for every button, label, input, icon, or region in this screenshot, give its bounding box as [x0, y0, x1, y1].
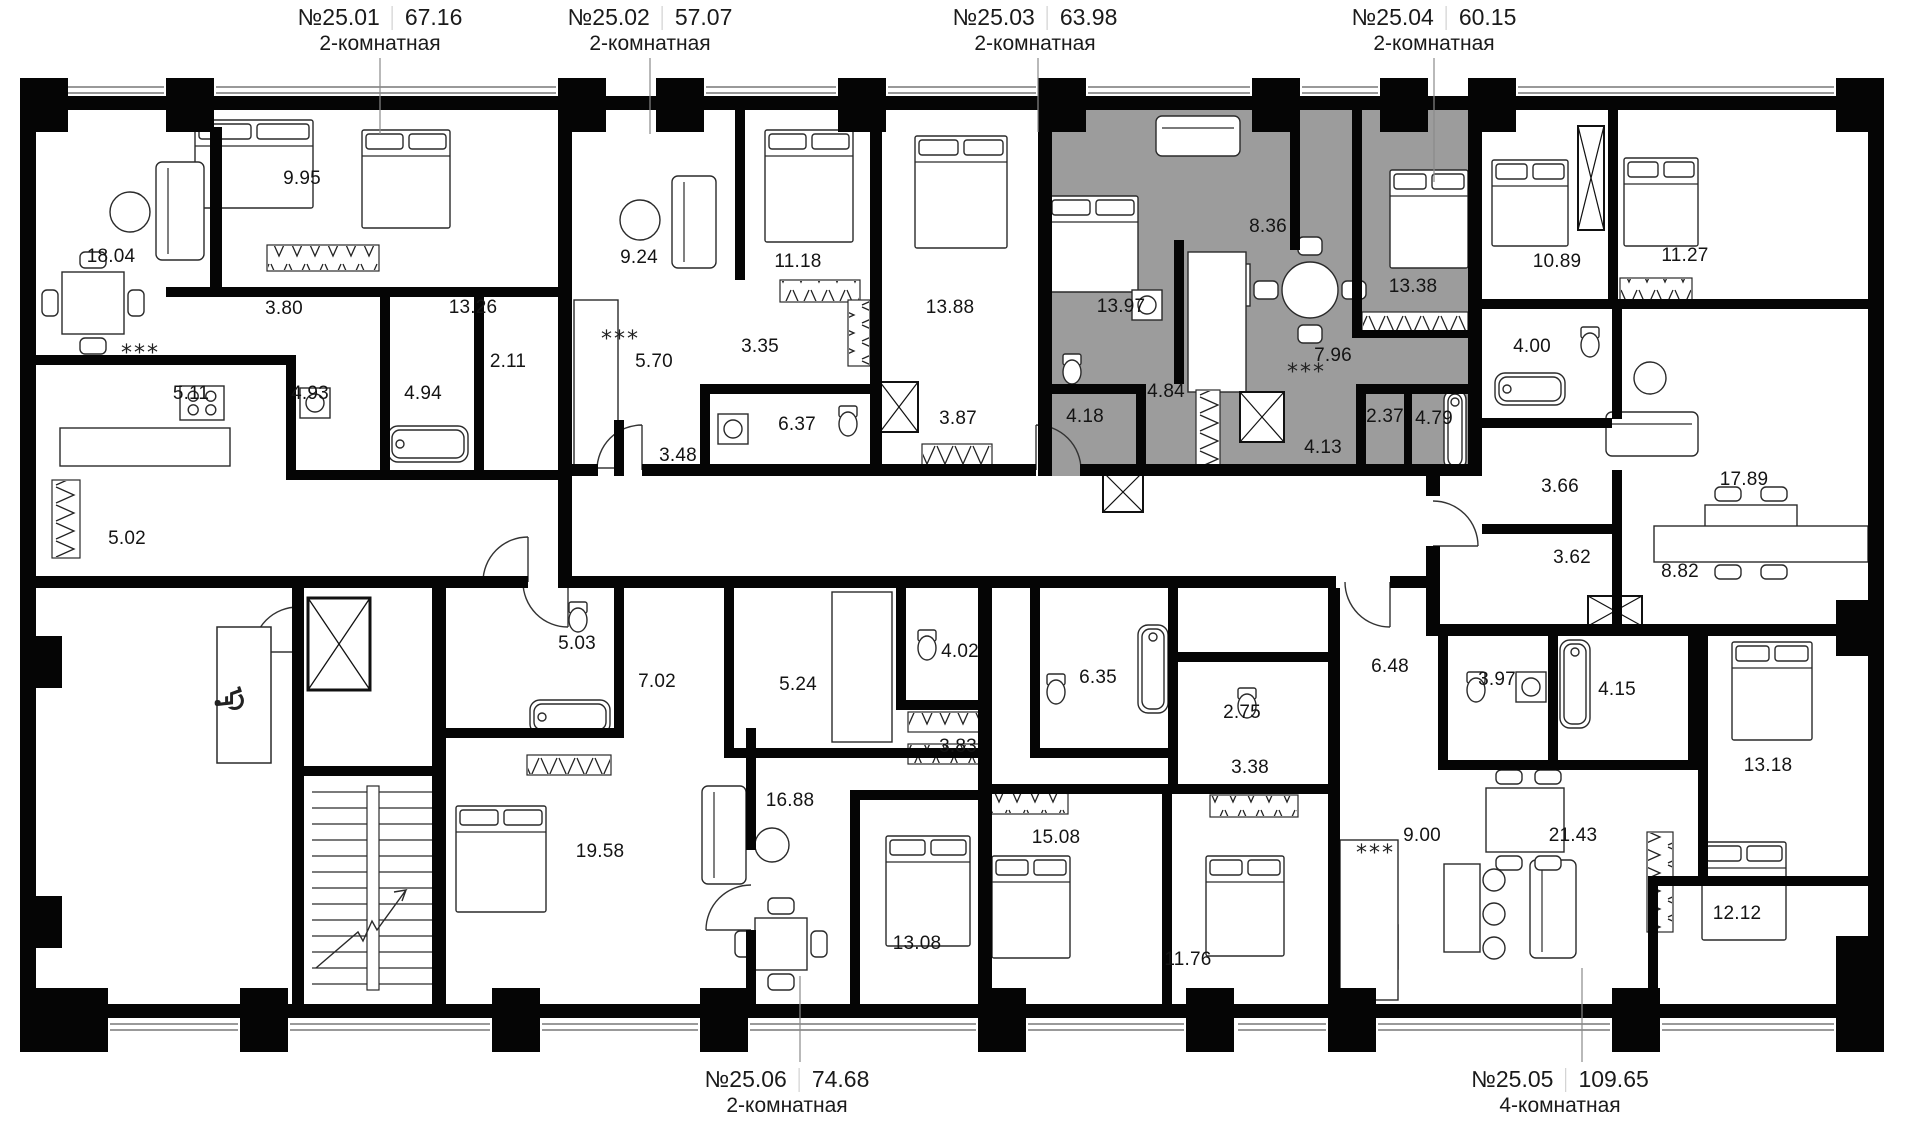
room-area-label: 7.96 — [1314, 345, 1352, 367]
apartment-type: 2-комнатная — [568, 32, 733, 56]
room-area-label: 3.62 — [1553, 547, 1591, 569]
room-area-label: 3.80 — [265, 298, 303, 320]
room-area-label: 15.08 — [1032, 827, 1081, 849]
room-area-label: 6.35 — [1079, 667, 1117, 689]
apartment-type: 2-комнатная — [1352, 32, 1517, 56]
apartment-number: №25.02 — [568, 4, 650, 31]
apartment-label-25-06[interactable]: №25.06 74.68 2-комнатная — [705, 1066, 870, 1118]
room-area-label: 13.18 — [1744, 755, 1793, 777]
room-area-label: 5.03 — [558, 633, 596, 655]
room-area-label: 3.87 — [939, 408, 977, 430]
washer-symbol: *** — [1356, 841, 1395, 866]
room-area-label: 13.88 — [926, 297, 975, 319]
room-area-label: 3.48 — [659, 445, 697, 467]
apartment-label-25-02[interactable]: №25.02 57.07 2-комнатная — [568, 4, 733, 56]
room-area-label: 9.95 — [283, 168, 321, 190]
room-area-label: 11.18 — [774, 251, 821, 273]
wheelchair-accessible-icon: ♿ — [208, 680, 254, 716]
apartment-type: 2-комнатная — [298, 32, 463, 56]
room-area-label: 19.58 — [576, 841, 625, 863]
room-area-label: 8.36 — [1249, 216, 1287, 238]
apartment-type: 2-комнатная — [705, 1094, 870, 1118]
room-area-label: 11.76 — [1164, 949, 1211, 971]
apartment-title: №25.01 67.16 — [298, 4, 463, 31]
label-divider — [799, 1068, 800, 1092]
apartment-area: 57.07 — [675, 4, 733, 31]
apartment-label-25-03[interactable]: №25.03 63.98 2-комнатная — [953, 4, 1118, 56]
room-area-label: 18.04 — [87, 246, 136, 268]
room-area-label: 4.02 — [941, 641, 979, 663]
room-area-label: 2.75 — [1223, 702, 1261, 724]
room-area-label: 8.82 — [1661, 561, 1699, 583]
room-area-label: 6.37 — [778, 414, 816, 436]
apartment-area: 63.98 — [1060, 4, 1118, 31]
room-area-label: 4.00 — [1513, 336, 1551, 358]
apartment-label-25-01[interactable]: №25.01 67.16 2-комнатная — [298, 4, 463, 56]
room-area-label: 4.18 — [1066, 406, 1104, 428]
room-area-label: 5.11 — [173, 383, 209, 405]
room-area-label: 10.89 — [1533, 251, 1582, 273]
room-area-label: 4.93 — [291, 383, 329, 405]
room-area-label: 4.84 — [1147, 381, 1185, 403]
apartment-title: №25.05 109.65 — [1471, 1066, 1649, 1093]
room-area-label: 2.37 — [1366, 406, 1404, 428]
furniture-symbols-layer: ************ — [42, 116, 1868, 1000]
room-area-label: 7.02 — [638, 671, 676, 693]
apartment-label-25-04[interactable]: №25.04 60.15 2-комнатная — [1352, 4, 1517, 56]
room-area-label: 13.97 — [1097, 296, 1146, 318]
apartment-title: №25.03 63.98 — [953, 4, 1118, 31]
label-divider — [662, 6, 663, 30]
room-area-label: 2.11 — [490, 351, 526, 373]
label-divider — [1446, 6, 1447, 30]
room-area-label: 13.26 — [449, 297, 498, 319]
room-area-label: 9.00 — [1403, 825, 1441, 847]
building-core-layer: ♿ — [208, 598, 432, 990]
room-area-label: 9.24 — [620, 247, 658, 269]
room-area-label: 13.08 — [893, 933, 942, 955]
apartment-area: 109.65 — [1578, 1066, 1648, 1093]
apartment-number: №25.01 — [298, 4, 380, 31]
room-area-label: 21.43 — [1549, 825, 1598, 847]
room-area-label: 16.88 — [766, 790, 815, 812]
room-area-label: 6.48 — [1371, 656, 1409, 678]
room-area-label: 4.94 — [404, 383, 442, 405]
apartment-area: 67.16 — [405, 4, 463, 31]
apartment-area: 60.15 — [1459, 4, 1517, 31]
washer-symbol: *** — [601, 327, 640, 352]
apartment-type: 2-комнатная — [953, 32, 1118, 56]
room-area-label: 5.02 — [108, 528, 146, 550]
apartment-number: №25.03 — [953, 4, 1035, 31]
room-area-label: 17.89 — [1720, 469, 1769, 491]
label-divider — [392, 6, 393, 30]
apartment-title: №25.04 60.15 — [1352, 4, 1517, 31]
floor-plan-canvas: ************ ♿ №25.01 67.16 2-комнатная … — [0, 0, 1920, 1127]
room-area-label: 3.83 — [939, 736, 977, 758]
room-area-label: 3.38 — [1231, 757, 1269, 779]
room-area-label: 11.27 — [1661, 245, 1708, 267]
room-area-label: 3.35 — [741, 336, 779, 358]
room-area-label: 3.66 — [1541, 476, 1579, 498]
label-divider — [1047, 6, 1048, 30]
room-area-label: 12.12 — [1713, 903, 1762, 925]
apartment-number: №25.04 — [1352, 4, 1434, 31]
apartment-area: 74.68 — [812, 1066, 870, 1093]
room-area-label: 5.70 — [635, 351, 673, 373]
apartment-title: №25.06 74.68 — [705, 1066, 870, 1093]
room-area-label: 5.24 — [779, 674, 817, 696]
room-area-label: 4.15 — [1598, 679, 1636, 701]
room-area-label: 3.97 — [1478, 669, 1516, 691]
apartment-type: 4-комнатная — [1471, 1094, 1649, 1118]
room-area-label: 13.38 — [1389, 276, 1438, 298]
apartment-number: №25.05 — [1471, 1066, 1553, 1093]
room-area-label: 4.79 — [1415, 408, 1453, 430]
room-area-label: 4.13 — [1304, 437, 1342, 459]
apartment-number: №25.06 — [705, 1066, 787, 1093]
label-divider — [1565, 1068, 1566, 1092]
apartment-title: №25.02 57.07 — [568, 4, 733, 31]
apartment-label-25-05[interactable]: №25.05 109.65 4-комнатная — [1471, 1066, 1649, 1118]
